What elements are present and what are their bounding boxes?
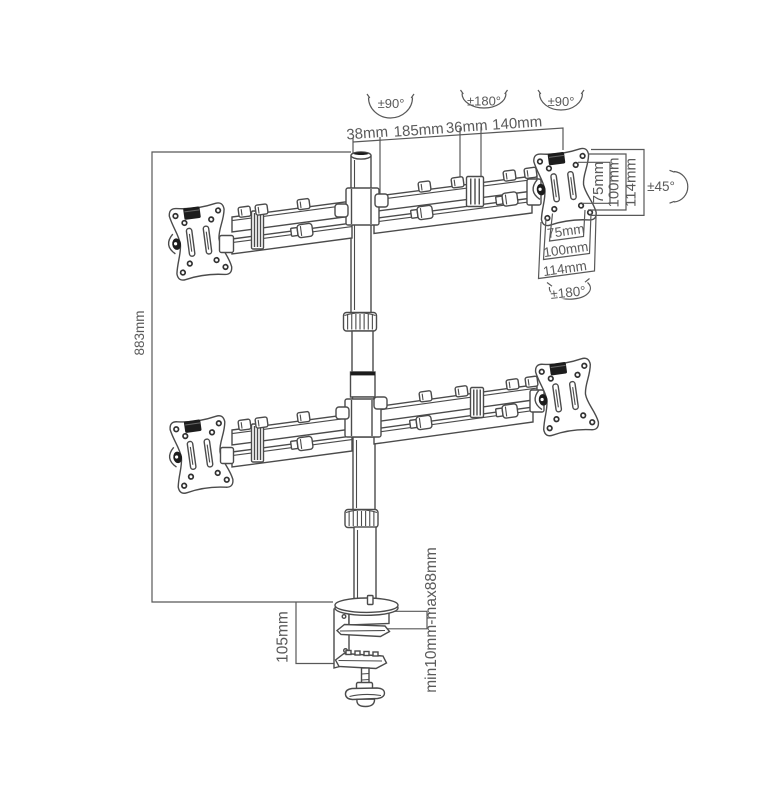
svg-text:±90°: ±90° — [548, 94, 575, 109]
svg-text:38mm: 38mm — [346, 124, 389, 144]
svg-text:105mm: 105mm — [275, 611, 292, 663]
svg-text:75mm: 75mm — [590, 162, 607, 204]
svg-text:100mm: 100mm — [606, 157, 623, 207]
svg-text:min10mm-max88mm: min10mm-max88mm — [423, 547, 440, 693]
svg-text:±45°: ±45° — [647, 179, 675, 194]
svg-text:36mm: 36mm — [445, 117, 488, 137]
svg-text:±90°: ±90° — [378, 96, 405, 111]
svg-text:185mm: 185mm — [393, 120, 444, 140]
svg-text:140mm: 140mm — [492, 113, 543, 133]
svg-text:114mm: 114mm — [623, 158, 640, 207]
svg-text:883mm: 883mm — [132, 310, 147, 355]
svg-text:±180°: ±180° — [467, 94, 501, 109]
